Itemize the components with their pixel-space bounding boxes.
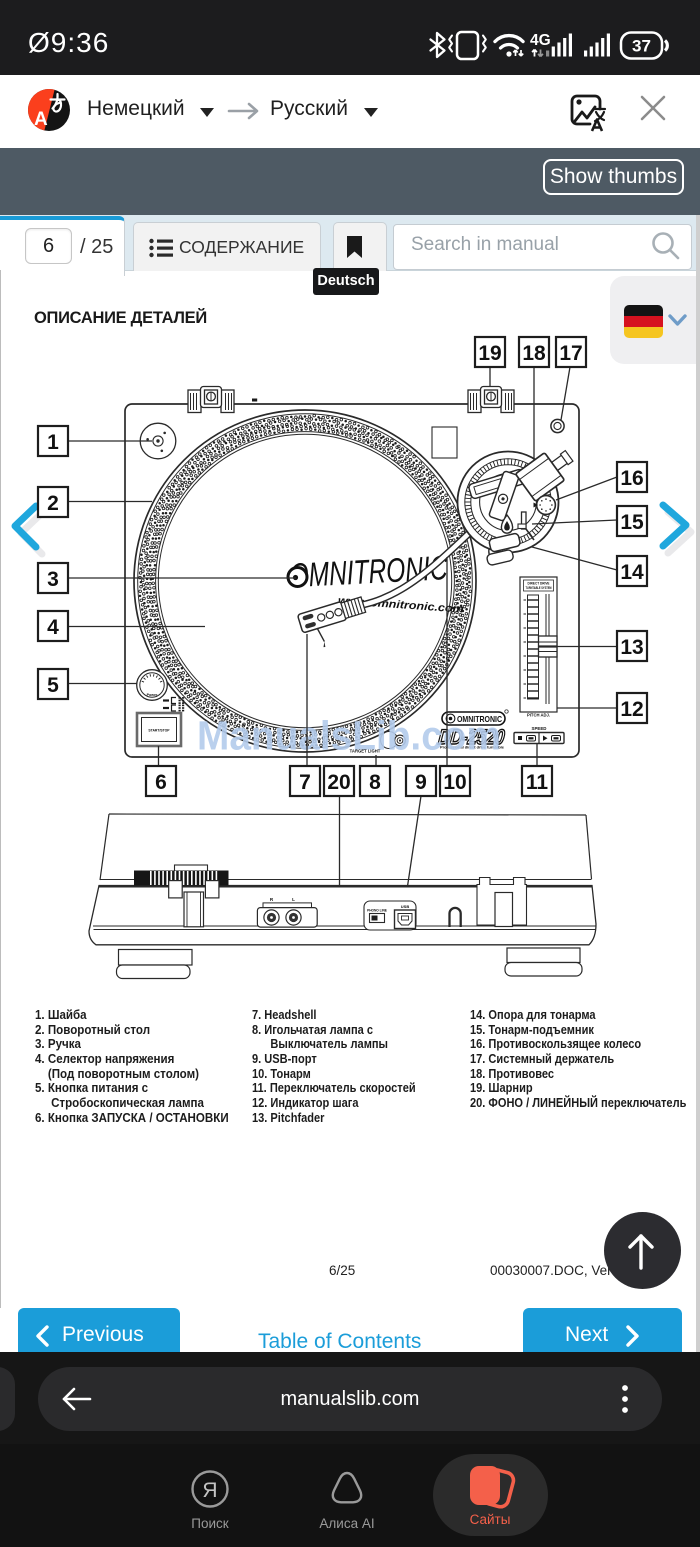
svg-text:PHONO LINE: PHONO LINE: [367, 909, 387, 913]
svg-text:Я: Я: [202, 1479, 217, 1502]
svg-text:11: 11: [526, 771, 549, 794]
svg-text:14: 14: [620, 561, 644, 584]
svg-text:17: 17: [559, 342, 582, 365]
svg-text:15: 15: [620, 511, 644, 534]
svg-text:SPEED: SPEED: [532, 726, 547, 731]
svg-text:TURNTABLE SYSTEM: TURNTABLE SYSTEM: [526, 586, 552, 590]
svg-text:2: 2: [47, 492, 59, 515]
svg-text:USB: USB: [401, 904, 410, 909]
svg-text:4: 4: [47, 616, 59, 639]
svg-text:7: 7: [299, 771, 311, 794]
svg-text:6: 6: [155, 771, 167, 794]
svg-text:9: 9: [415, 771, 427, 794]
svg-text:20: 20: [327, 771, 350, 794]
svg-text:3: 3: [47, 568, 59, 591]
svg-text:12: 12: [620, 698, 643, 721]
svg-text:PITCH ADJ.: PITCH ADJ.: [527, 713, 550, 718]
svg-text:L: L: [292, 897, 295, 902]
svg-text:16: 16: [620, 467, 643, 490]
svg-text:5: 5: [47, 674, 59, 697]
svg-text:START/STOP: START/STOP: [148, 729, 170, 733]
svg-text:ManualsLib.com: ManualsLib.com: [197, 713, 501, 759]
svg-text:1: 1: [47, 431, 59, 454]
svg-text:18: 18: [522, 342, 546, 365]
svg-text:10: 10: [443, 771, 466, 794]
svg-text:Power: Power: [147, 693, 158, 697]
svg-text:19: 19: [478, 342, 501, 365]
svg-text:13: 13: [620, 636, 643, 659]
svg-text:8: 8: [369, 771, 381, 794]
